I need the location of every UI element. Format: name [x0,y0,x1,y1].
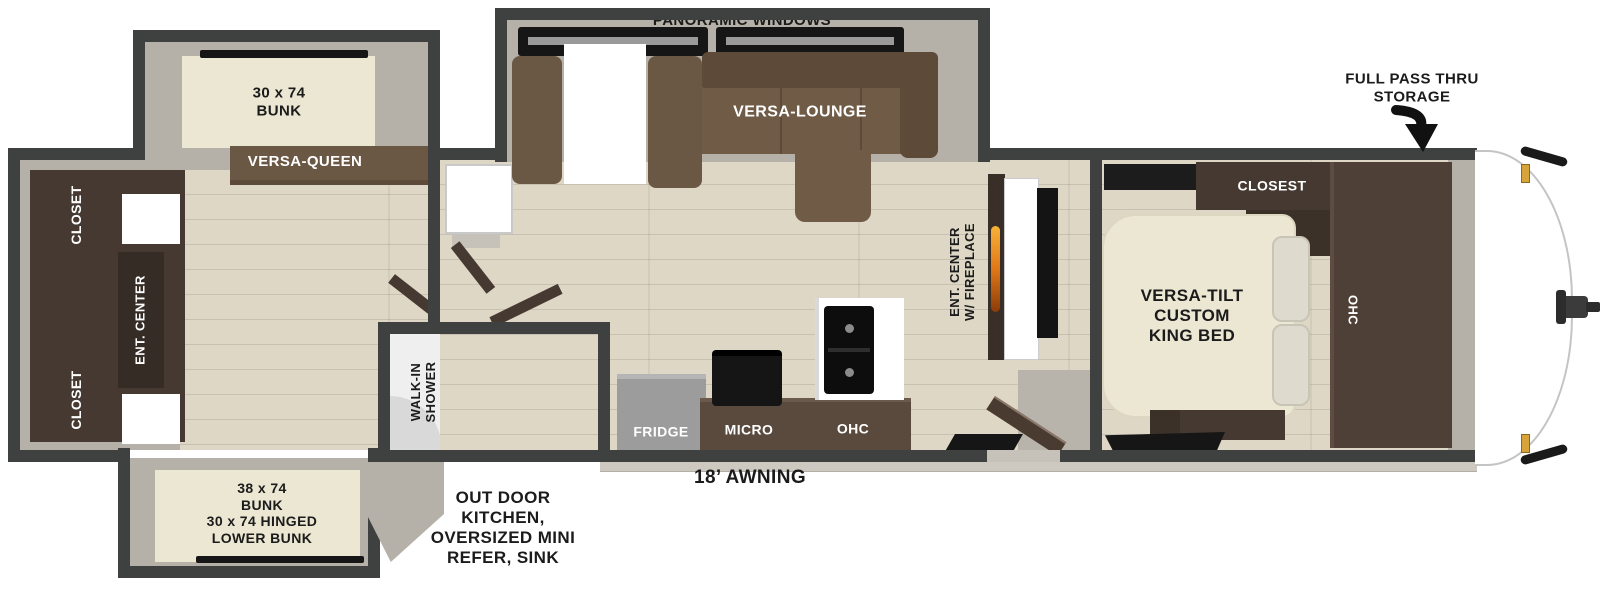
rear-closet-top-label: CLOSET [68,185,84,244]
wall [598,322,610,462]
wall [8,148,145,160]
wall [1060,450,1477,462]
hitch-jack [1556,290,1566,324]
versa-queen-label: VERSA-QUEEN [248,153,362,171]
bed-pillow [1272,236,1310,322]
rear-ent-center-label: ENT. CENTER [134,275,149,365]
lounge-sofa-arm-left [512,56,562,184]
fridge-label: FRIDGE [633,424,688,441]
bunk-bottom-window [196,556,364,563]
bunk-top-window [200,50,368,58]
wall [378,450,610,462]
sink-drain [845,324,854,333]
tv-panel [1037,188,1058,338]
down-arrow-icon [1384,104,1448,158]
wall [378,322,390,462]
versa-lounge-label: VERSA-LOUNGE [733,104,867,123]
microwave [712,350,782,406]
sectional-chaise [795,150,871,222]
bedroom-front-wallface [1448,160,1477,450]
rear-tv-top [122,194,180,244]
wall [495,8,990,20]
wall [428,30,440,150]
sectional-arm-right [900,52,938,158]
clearance-light-top [1521,164,1530,183]
ent-center-cabinet [1004,178,1039,360]
wall [598,450,987,462]
bunk-top-label: 30 x 74 BUNK [253,84,306,119]
sink-divider [828,348,870,352]
wall [118,566,380,578]
lounge-sofa-arm-mid [648,56,702,188]
wall [428,148,440,334]
bed-pillow [1272,324,1310,406]
bedroom-closet-label: CLOSEST [1238,178,1307,195]
wall [8,148,20,462]
outdoor-kitchen-label: OUT DOOR KITCHEN, OVERSIZED MINI REFER, … [431,488,575,568]
ohc-label: OHC [837,421,869,438]
lounge-table [564,44,646,184]
bunk-bottom-label: 38 x 74 BUNK 30 x 74 HINGED LOWER BUNK [207,480,318,546]
window-glass [726,37,894,45]
awning-label: 18’ AWNING [694,467,806,489]
walk-in-shower-label: WALK-IN SHOWER [409,362,439,423]
full-pass-thru-label: FULL PASS THRU STORAGE [1345,70,1478,105]
bedroom-ohc-label: OHC [1345,295,1360,325]
rear-closet-bottom-label: CLOSET [68,370,84,429]
wall [133,30,145,160]
hitch-tongue [1586,302,1600,312]
wall [133,30,440,42]
wall [8,450,130,462]
roof-vent [1104,164,1198,190]
king-bed-label: VERSA-TILT CUSTOM KING BED [1141,286,1244,346]
floorplan-diagram: CLOSET ENT. CENTER CLOSET 30 x 74 BUNK V… [0,0,1600,611]
wall [1090,158,1102,462]
ent-center-fireplace-label: ENT. CENTER W/ FIREPLACE [948,223,978,321]
wall [978,8,990,162]
wall [495,8,507,162]
fireplace-flame [991,226,1000,312]
wall [378,322,610,334]
micro-label: MICRO [725,422,774,439]
wall [118,448,130,578]
clearance-light-bottom [1521,434,1530,453]
kitchen-sink [824,306,874,394]
sink-drain [845,368,854,377]
fridge [617,374,706,455]
living-cabinet [445,164,513,234]
entry-threshold [987,450,1060,462]
rear-tv-bottom [122,394,180,444]
